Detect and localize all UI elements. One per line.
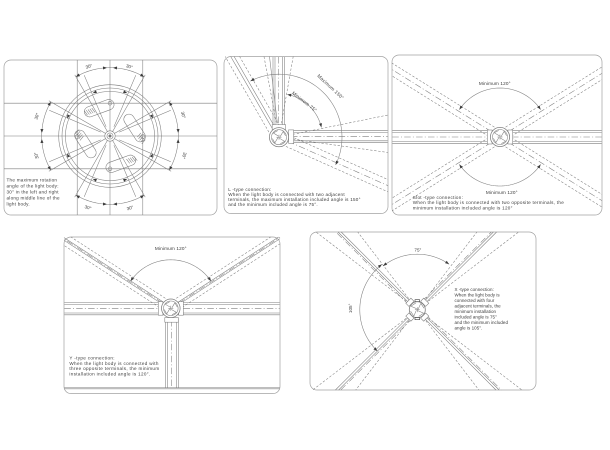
svg-text:Minimum 120°: Minimum 120° bbox=[155, 246, 187, 251]
svg-text:minimum installation: minimum installation bbox=[455, 309, 497, 314]
svg-text:When the light body is: When the light body is bbox=[455, 293, 501, 298]
svg-text:and the minimum included angle: and the minimum included angle is 75°. bbox=[228, 202, 318, 207]
svg-text:connected with four: connected with four bbox=[455, 298, 495, 303]
svg-text:When the light body is connect: When the light body is connected with tw… bbox=[413, 200, 564, 205]
svg-text:and the minimum included: and the minimum included bbox=[455, 320, 509, 325]
svg-text:installation included angle is: installation included angle is 120°. bbox=[69, 371, 150, 376]
svg-text:adjacent terminals, the: adjacent terminals, the bbox=[455, 304, 502, 309]
svg-text:X -type connection:: X -type connection: bbox=[455, 287, 494, 292]
svg-text:Minimum 120°: Minimum 120° bbox=[486, 190, 518, 195]
svg-text:included angle is 75°: included angle is 75° bbox=[455, 315, 498, 320]
svg-text:The maximum rotation: The maximum rotation bbox=[7, 178, 58, 183]
svg-text:light body.: light body. bbox=[7, 201, 30, 206]
svg-text:minimum installation included: minimum installation included angle is 1… bbox=[413, 206, 513, 211]
svg-text:Minimum 120°: Minimum 120° bbox=[479, 81, 511, 86]
svg-text:along middle line of the: along middle line of the bbox=[7, 195, 60, 200]
svg-text:angle is 105°.: angle is 105°. bbox=[455, 326, 483, 331]
svg-text:30° in the left and right: 30° in the left and right bbox=[7, 189, 60, 194]
svg-text:75°: 75° bbox=[414, 248, 421, 253]
svg-text:angle of the light body:: angle of the light body: bbox=[7, 184, 59, 189]
svg-text:Y -type connection:: Y -type connection: bbox=[69, 356, 115, 361]
svg-text:105°: 105° bbox=[348, 303, 353, 313]
svg-text:three opposite terminals, the: three opposite terminals, the minimum bbox=[69, 366, 159, 371]
